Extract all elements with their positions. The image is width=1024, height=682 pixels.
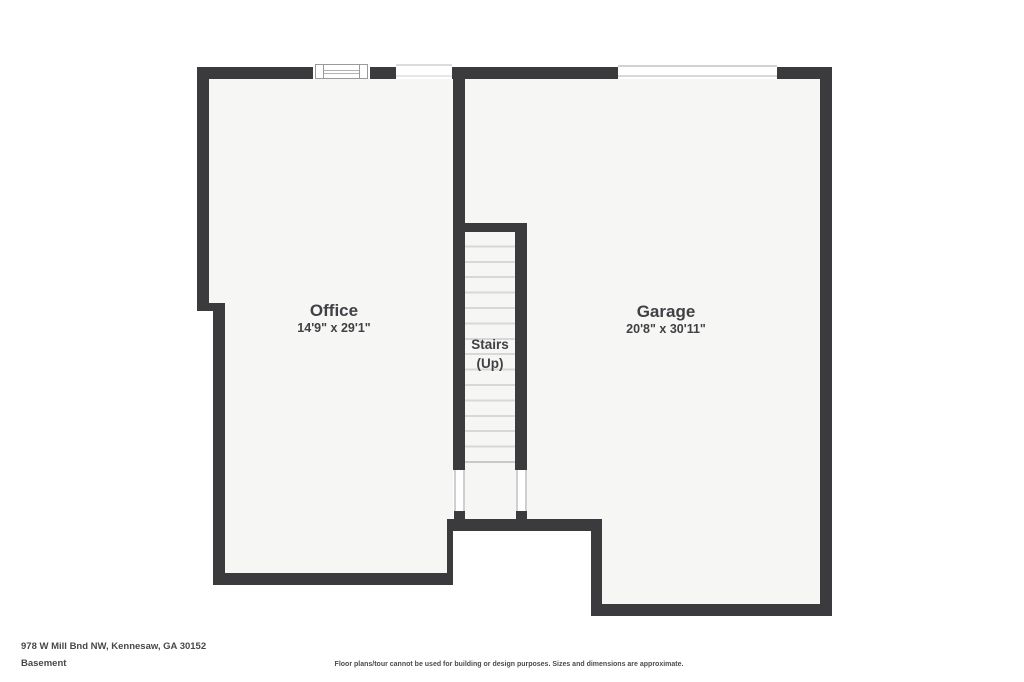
floor-plan-canvas: Office 14'9" x 29'1" Garage 20'8" x 30'1… <box>0 0 1024 682</box>
wall-garage-bottom <box>598 604 832 616</box>
window-end-cap-left <box>316 65 324 78</box>
office-name: Office <box>297 302 370 320</box>
wall-top-left <box>197 67 313 79</box>
garage-door-glyph <box>618 65 777 77</box>
stair-opening-right <box>516 470 527 511</box>
window-end-cap-right <box>359 65 367 78</box>
footer-level: Basement <box>21 658 66 669</box>
wall-right <box>820 67 832 616</box>
office-dimensions: 14'9" x 29'1" <box>297 321 370 336</box>
footer-disclaimer: Floor plans/tour cannot be used for buil… <box>335 661 684 668</box>
wall-office-bottom <box>213 573 453 585</box>
stair-opening-left <box>454 470 465 511</box>
garage-name: Garage <box>626 303 706 321</box>
garage-floor-lower <box>598 500 826 610</box>
wall-stairwell-right <box>515 223 527 470</box>
wall-garage-step <box>591 519 602 616</box>
office-label: Office 14'9" x 29'1" <box>297 302 370 336</box>
office-floor-upper <box>203 73 459 307</box>
stairs-label-line2: (Up) <box>471 355 509 374</box>
garage-dimensions: 20'8" x 30'11" <box>626 322 706 337</box>
window-glyph <box>315 64 368 79</box>
wall-top-garage-left <box>452 67 618 79</box>
wall-left-lower <box>213 303 225 585</box>
stairs-label-line1: Stairs <box>471 336 509 355</box>
garage-label: Garage 20'8" x 30'11" <box>626 303 706 337</box>
wall-divider-office-garage <box>453 67 465 470</box>
window-mid-line <box>324 70 359 74</box>
wall-top-mid <box>370 67 396 79</box>
office-floor-lower <box>219 300 453 579</box>
entry-opening-glyph <box>396 64 452 77</box>
stairs-label: Stairs (Up) <box>471 336 509 373</box>
footer-address: 978 W Mill Bnd NW, Kennesaw, GA 30152 <box>21 641 206 652</box>
wall-left-upper <box>197 67 209 311</box>
window-pane <box>324 65 359 78</box>
wall-mid-horizontal <box>448 519 602 531</box>
wall-stub-left <box>454 511 465 520</box>
wall-stub-right <box>516 511 527 520</box>
